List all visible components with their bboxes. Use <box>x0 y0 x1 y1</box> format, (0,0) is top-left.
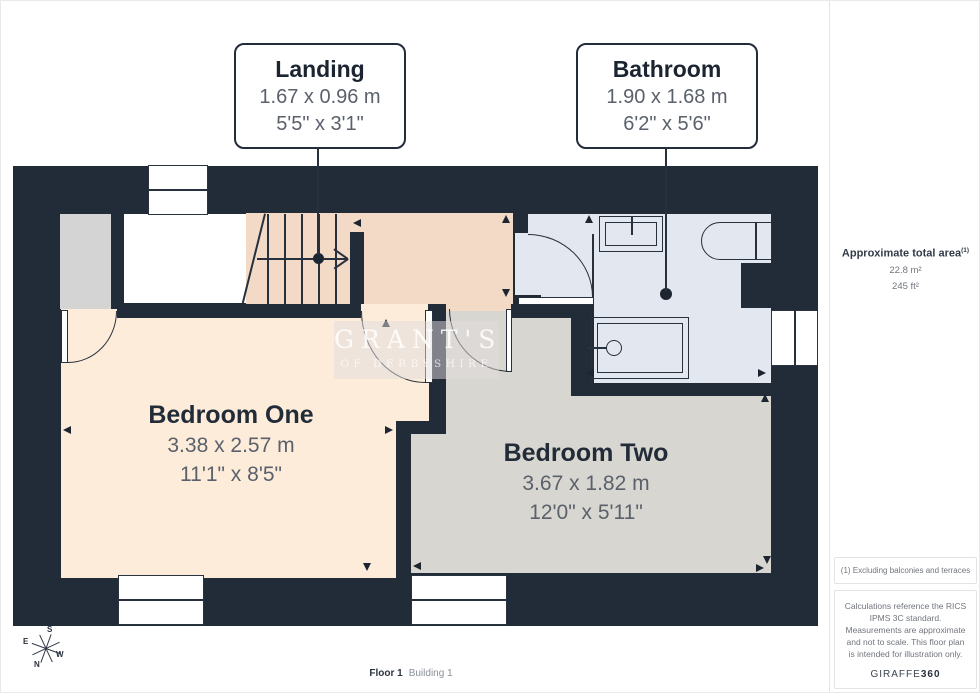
dimension-arrow-left-icon <box>413 562 421 570</box>
wall <box>741 263 771 308</box>
brand-name: GIRAFFE <box>870 669 920 680</box>
window-mullion <box>118 599 204 601</box>
compass-west: W <box>56 650 64 659</box>
wall <box>396 434 411 578</box>
shower-arm <box>587 347 607 349</box>
window-mullion <box>148 189 208 191</box>
compass-east: E <box>23 637 28 646</box>
bathroom-leader-line <box>665 149 667 291</box>
dimension-arrow-down-icon <box>363 563 371 571</box>
area-title: Approximate total area(1) <box>834 247 977 260</box>
brand-logo: GIRAFFE360 <box>843 669 968 681</box>
room-label-bedroom-one: Bedroom One 3.38 x 2.57 m 11'1" x 8'5" <box>81 399 381 489</box>
dimension-arrow-down-icon <box>763 556 771 564</box>
dimension-arrow-up-icon <box>585 215 593 223</box>
watermark: GRANT'S OF DERBYSHIRE <box>334 321 499 379</box>
watermark-line1: GRANT'S <box>334 323 499 357</box>
room-size-imperial: 6'2" x 5'6" <box>578 111 756 138</box>
footnote-ref: (1) <box>961 247 969 254</box>
compass-north: N <box>34 660 40 669</box>
dimension-arrow-left-icon <box>353 219 361 227</box>
room-size-metric: 3.67 x 1.82 m <box>436 469 736 498</box>
shower-drain <box>606 340 622 356</box>
bathroom-doorway <box>515 233 528 299</box>
window-mullion <box>411 599 507 601</box>
room-label-bedroom-two: Bedroom Two 3.67 x 1.82 m 12'0" x 5'11" <box>436 437 736 527</box>
room-size-metric: 1.67 x 0.96 m <box>236 84 404 111</box>
watermark-line2: OF DERBYSHIRE <box>334 357 499 371</box>
bathroom-door-leaf <box>518 297 594 305</box>
wall <box>350 232 364 304</box>
dimension-arrow-left-icon <box>63 426 71 434</box>
toilet-bowl <box>701 222 757 260</box>
floor-label: Floor 1 <box>369 668 402 679</box>
sidebar-divider <box>829 1 830 693</box>
label-landing: Landing 1.67 x 0.96 m 5'5" x 3'1" <box>234 43 406 149</box>
building-label: Building 1 <box>409 668 453 679</box>
area-ft2: 245 ft² <box>834 281 977 292</box>
window-mullion <box>794 310 796 366</box>
dimension-arrow-right-icon <box>756 564 764 572</box>
plan-footer: Floor 1Building 1 <box>331 668 491 679</box>
label-bathroom: Bathroom 1.90 x 1.68 m 6'2" x 5'6" <box>576 43 758 149</box>
room-size-imperial: 5'5" x 3'1" <box>236 111 404 138</box>
bathroom-door-jamb <box>592 234 594 298</box>
room-name: Bathroom <box>578 54 756 84</box>
closet-door-leaf <box>61 310 68 363</box>
dimension-arrow-up-icon <box>761 394 769 402</box>
disclaimer-text: Calculations reference the RICS IPMS 3C … <box>845 601 966 659</box>
floor-plan-page: GRANT'S OF DERBYSHIRE Landing 1.67 x 0.9… <box>0 0 980 693</box>
compass-south: S <box>47 625 52 634</box>
footnote-exclusions: (1) Excluding balconies and terraces <box>834 557 977 584</box>
dimension-arrow-right-icon <box>758 369 766 377</box>
disclaimer: Calculations reference the RICS IPMS 3C … <box>834 590 977 689</box>
landing-leader-anchor <box>313 253 324 264</box>
room-size-imperial: 12'0" x 5'11" <box>436 498 736 527</box>
stair-direction-arrow <box>257 258 348 260</box>
room-name: Landing <box>236 54 404 84</box>
area-m2: 22.8 m² <box>834 265 977 276</box>
toilet-cistern <box>755 222 772 260</box>
landing-leader-line <box>317 149 319 255</box>
area-summary: Approximate total area(1) 22.8 m² 245 ft… <box>834 247 977 292</box>
room-name: Bedroom Two <box>436 437 736 469</box>
dimension-arrow-left-icon <box>586 369 594 377</box>
wall <box>396 421 446 434</box>
room-size-imperial: 11'1" x 8'5" <box>81 460 381 489</box>
closet-floor <box>60 214 111 309</box>
brand-suffix: 360 <box>921 669 941 680</box>
dimension-arrow-right-icon <box>385 426 393 434</box>
dimension-arrow-up-icon <box>502 215 510 223</box>
dimension-arrow-down-icon <box>502 289 510 297</box>
room-size-metric: 3.38 x 2.57 m <box>81 431 381 460</box>
room-name: Bedroom One <box>81 399 381 431</box>
sink-tap <box>631 216 633 235</box>
room-size-metric: 1.90 x 1.68 m <box>578 84 756 111</box>
